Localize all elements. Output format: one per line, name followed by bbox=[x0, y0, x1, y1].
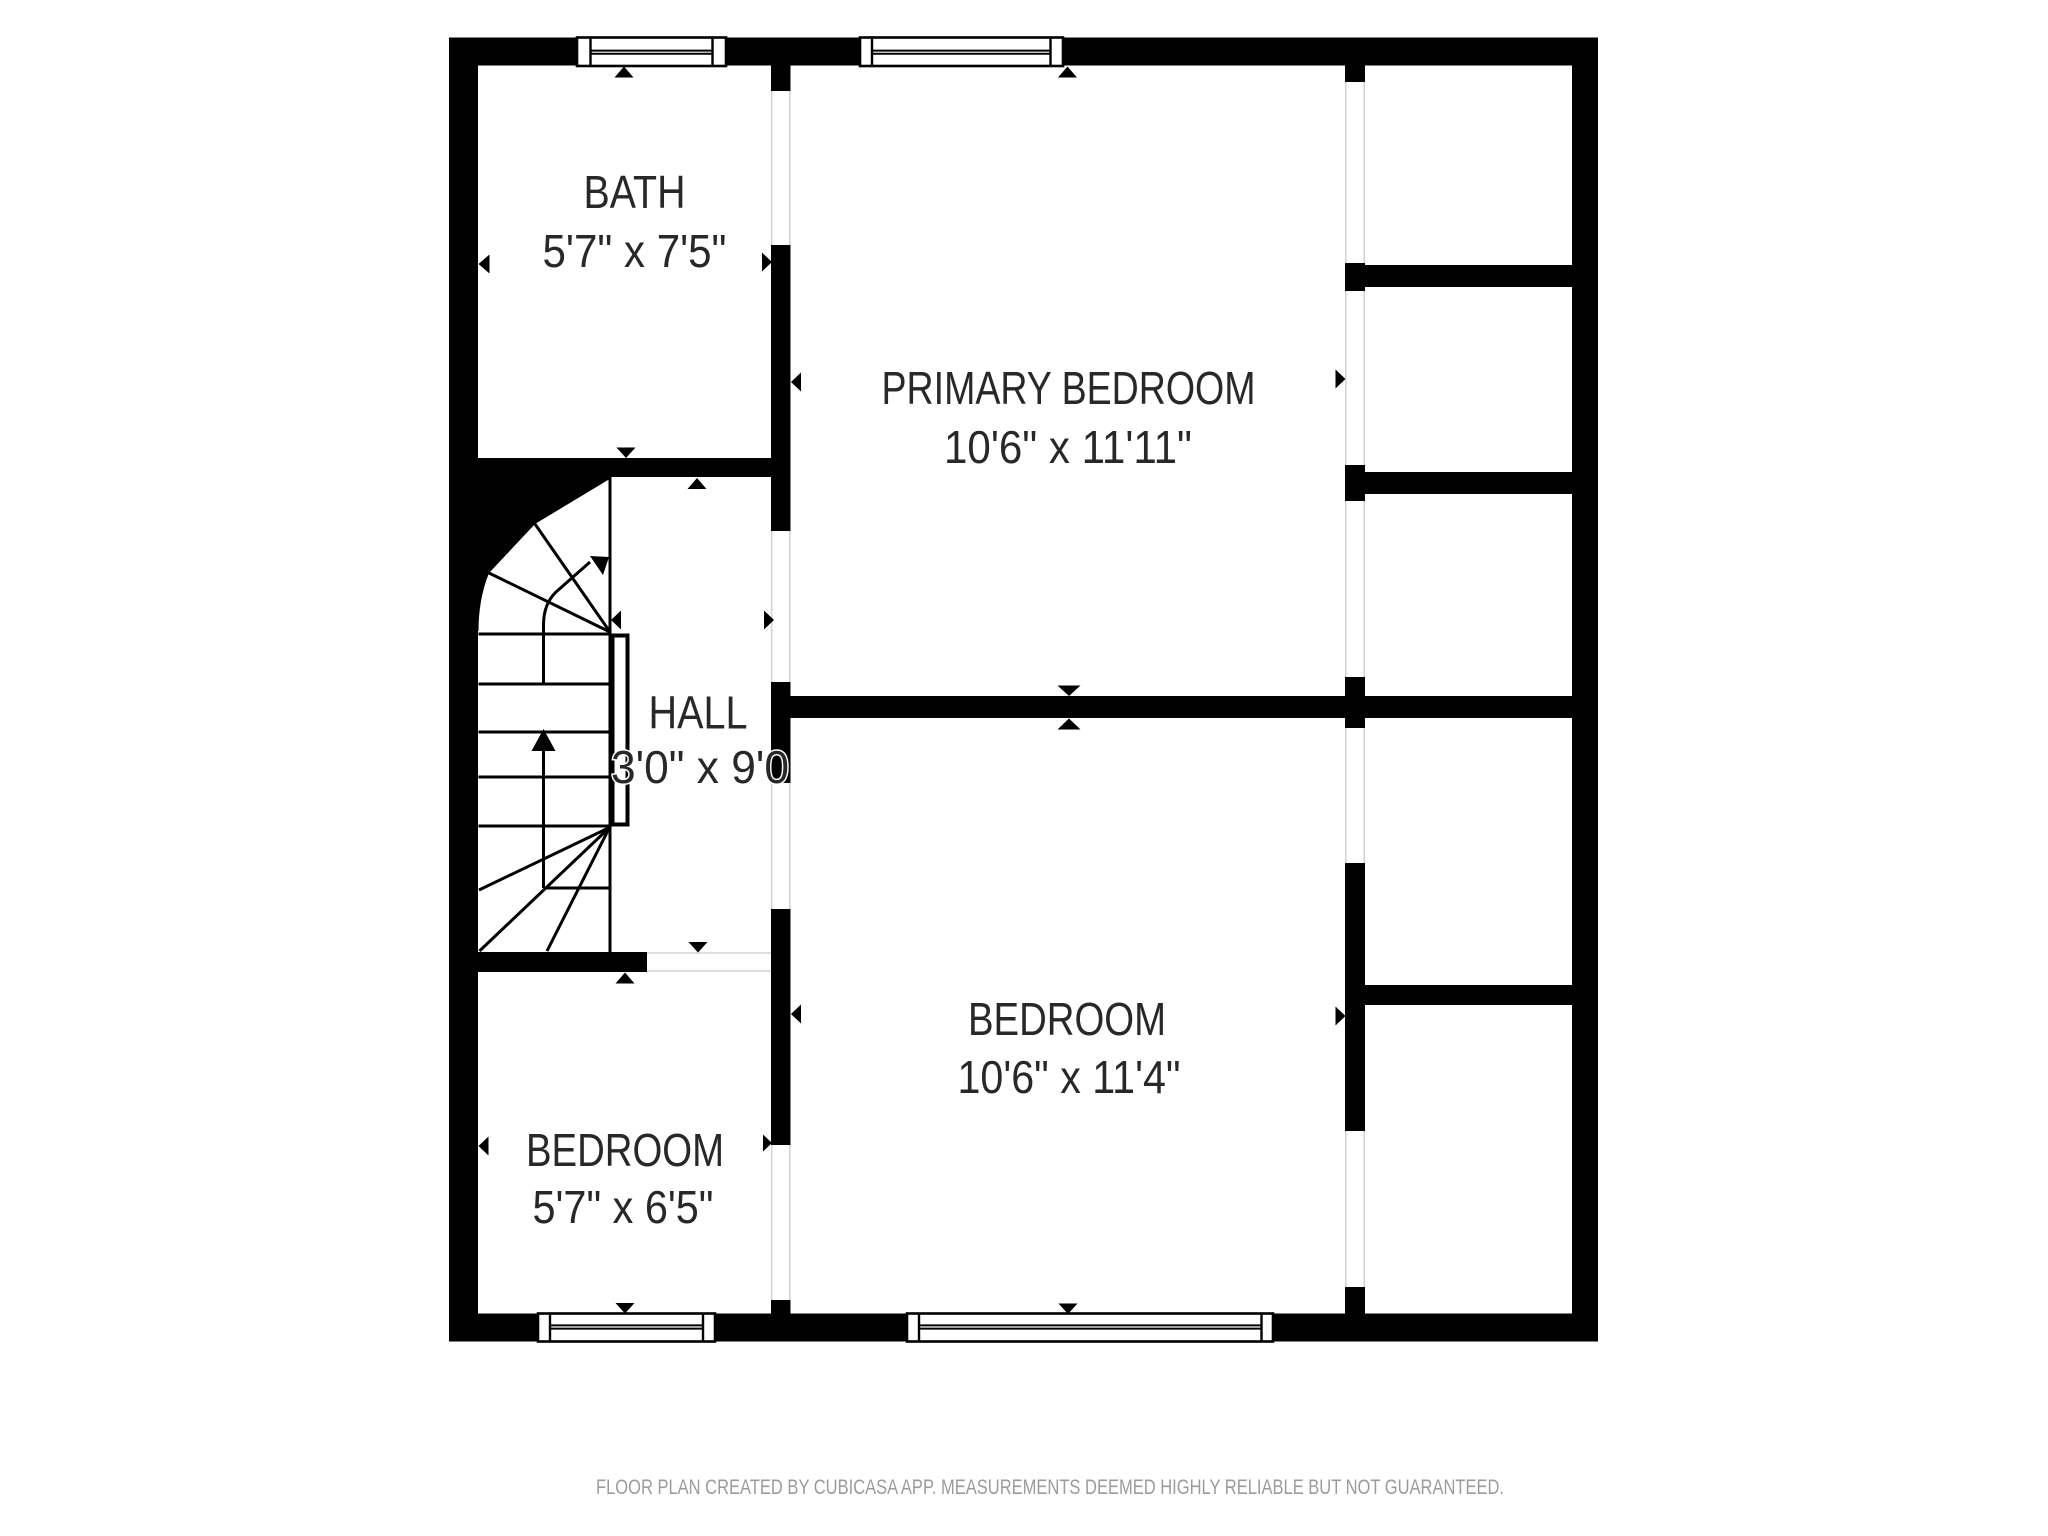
svg-text:3'0" x 9'0: 3'0" x 9'0 bbox=[611, 741, 789, 793]
svg-text:BEDROOM: BEDROOM bbox=[968, 993, 1166, 1045]
svg-text:10'6" x 11'11": 10'6" x 11'11" bbox=[944, 421, 1192, 473]
svg-text:BATH: BATH bbox=[584, 166, 686, 218]
svg-text:10'6" x 11'4": 10'6" x 11'4" bbox=[958, 1051, 1181, 1103]
svg-text:5'7" x 6'5": 5'7" x 6'5" bbox=[533, 1181, 714, 1233]
svg-text:5'7" x 7'5": 5'7" x 7'5" bbox=[543, 225, 727, 277]
svg-text:PRIMARY BEDROOM: PRIMARY BEDROOM bbox=[882, 362, 1256, 414]
svg-text:FLOOR PLAN CREATED BY CUBICASA: FLOOR PLAN CREATED BY CUBICASA APP. MEAS… bbox=[596, 1475, 1504, 1499]
svg-text:BEDROOM: BEDROOM bbox=[526, 1124, 724, 1176]
svg-text:HALL: HALL bbox=[649, 687, 748, 739]
